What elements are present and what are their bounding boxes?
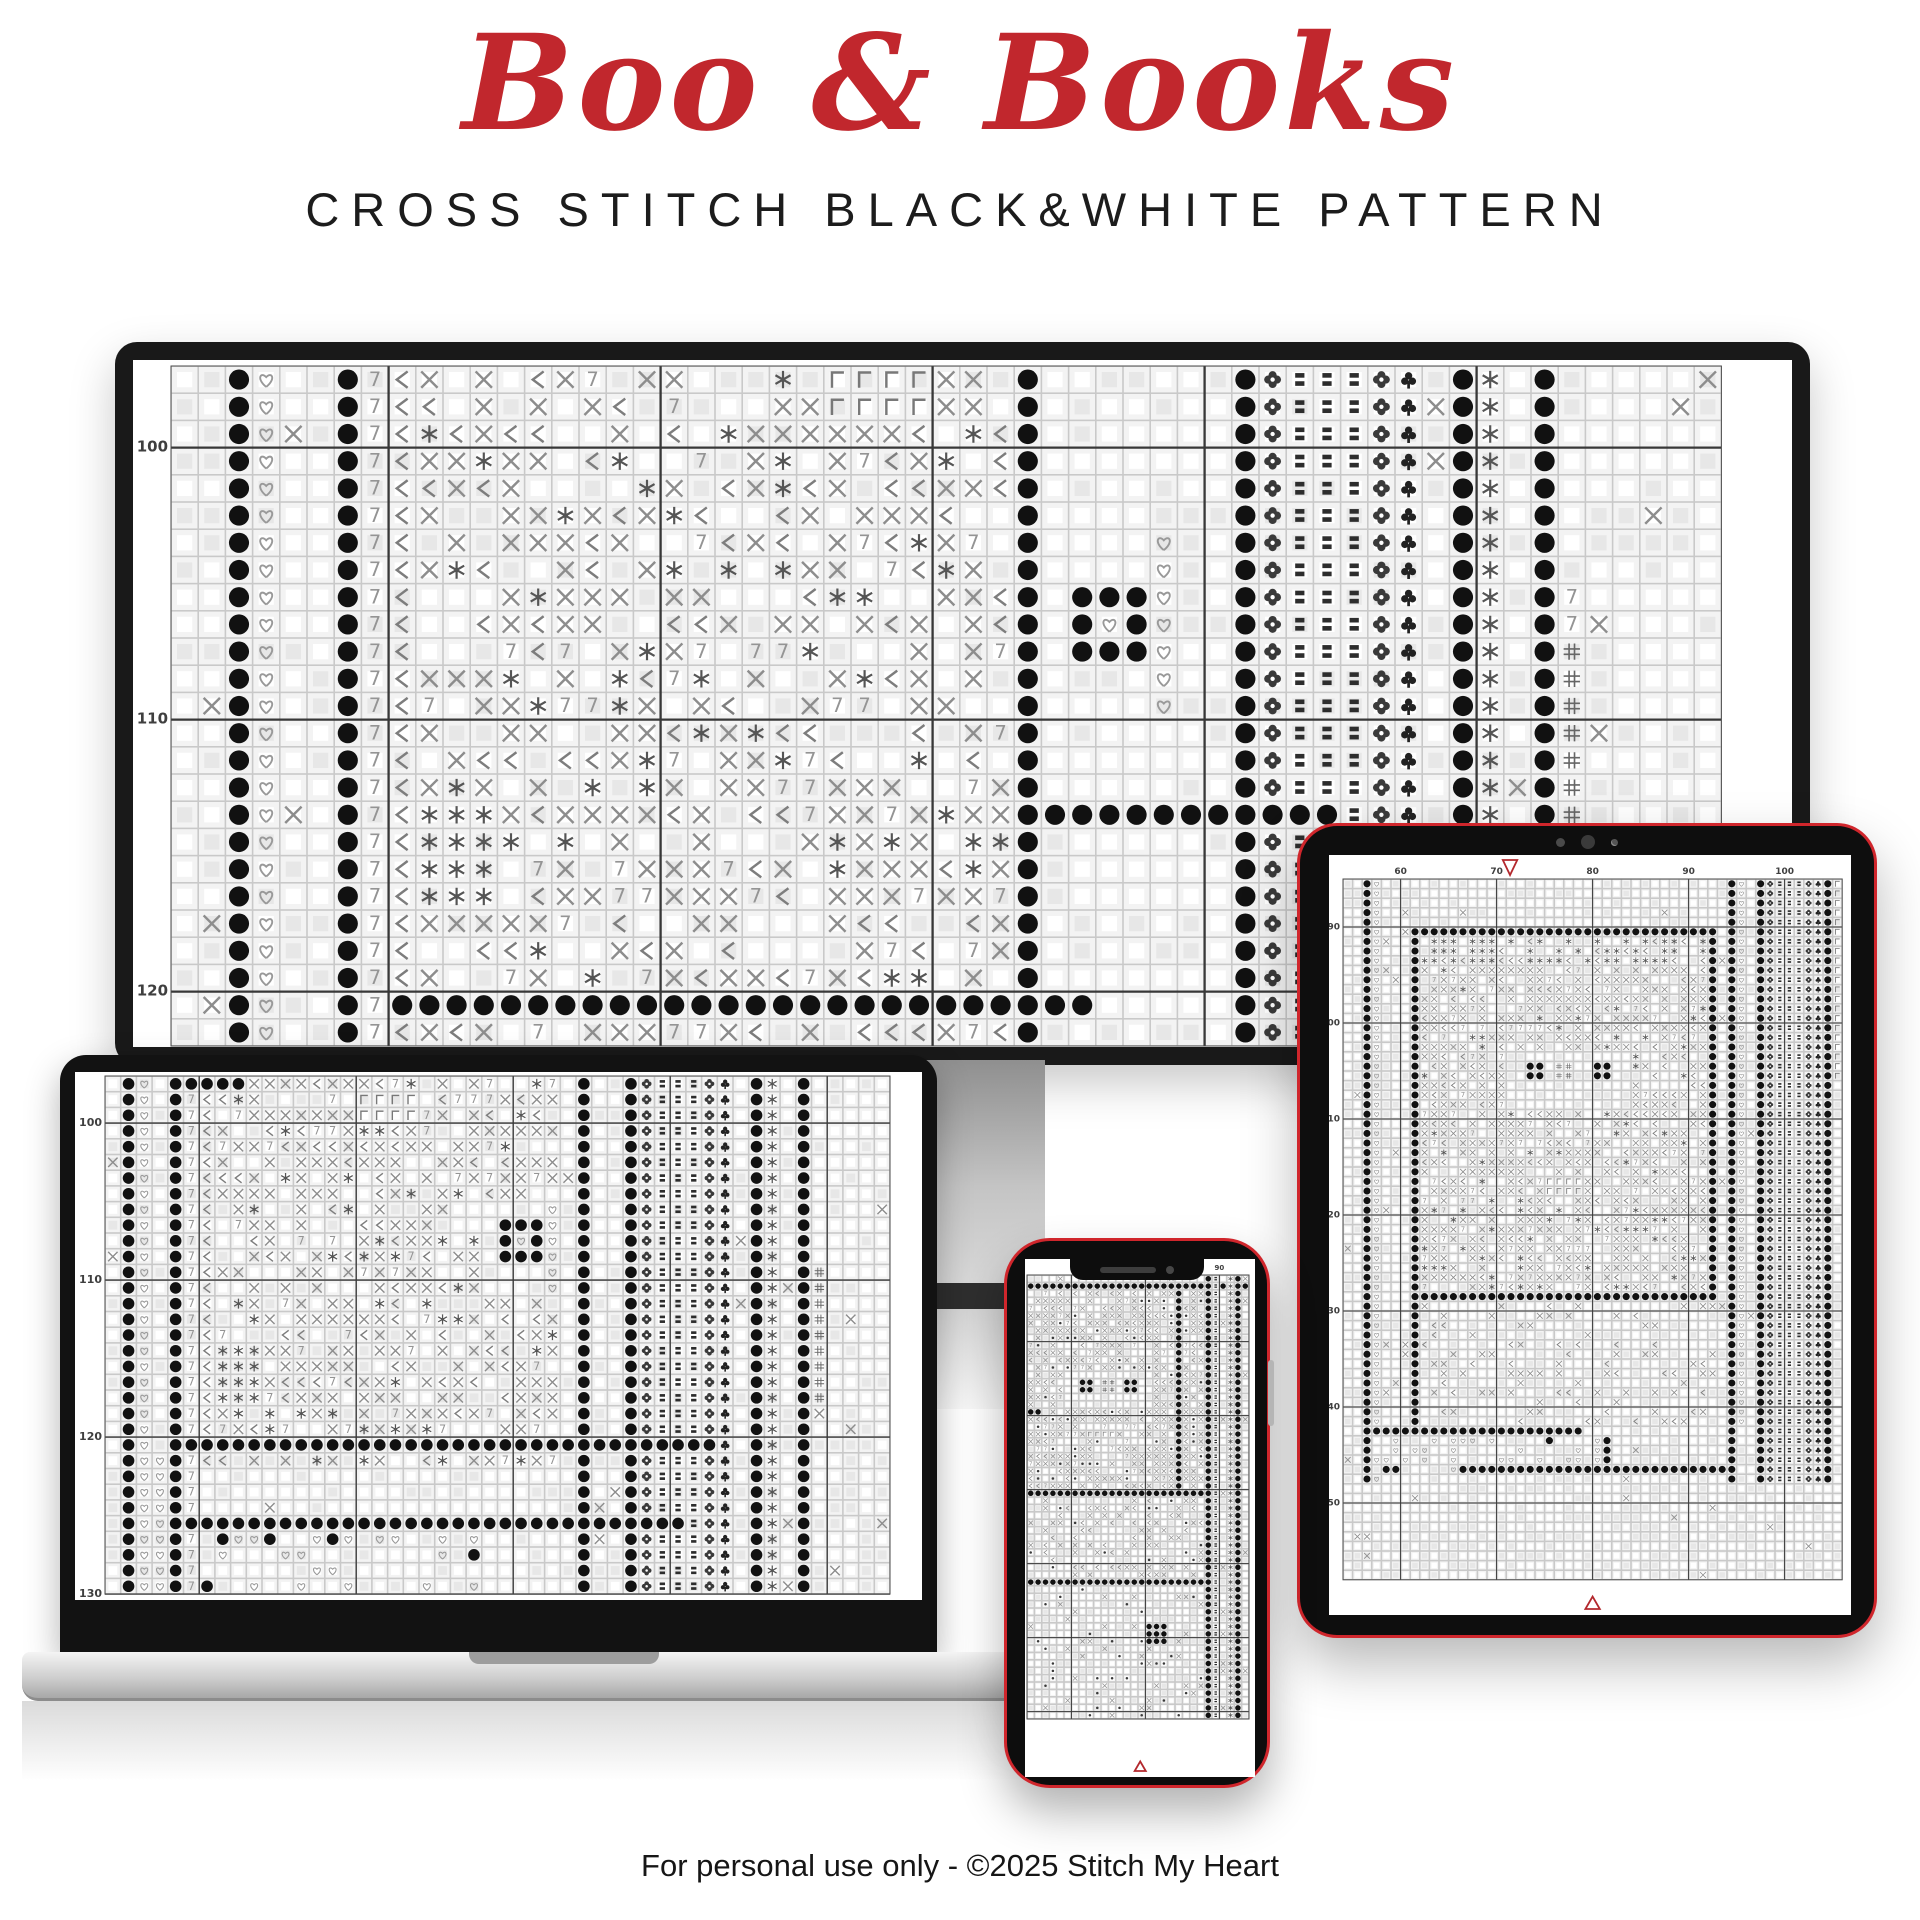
tablet-mockup (1297, 823, 1877, 1638)
footer-text: For personal use only - ©2025 Stitch My … (0, 1848, 1920, 1884)
poster: Boo & Books CROSS STITCH BLACK&WHITE PAT… (0, 0, 1920, 1920)
laptop-reflection (22, 1701, 1105, 1781)
tablet-screen (1329, 855, 1851, 1615)
phone-side-button (1268, 1360, 1274, 1426)
tablet-camera-dot-icon (1556, 838, 1565, 847)
phone-pattern-canvas (1025, 1259, 1255, 1777)
laptop-base-notch (469, 1652, 659, 1664)
laptop-base (22, 1652, 1105, 1701)
poster-subtitle: CROSS STITCH BLACK&WHITE PATTERN (0, 182, 1920, 237)
laptop-screen (75, 1072, 922, 1600)
tablet-bezel (1300, 826, 1874, 1635)
tablet-camera-lens-icon (1581, 835, 1595, 849)
phone-screen (1025, 1259, 1255, 1777)
tablet-sensor-dot-icon (1611, 839, 1618, 846)
poster-title: Boo & Books (0, 8, 1920, 160)
phone-speaker-icon (1100, 1267, 1156, 1273)
phone-notch (1070, 1259, 1204, 1280)
tablet-pattern-canvas (1329, 855, 1851, 1615)
phone-camera-icon (1166, 1266, 1174, 1274)
phone-bezel (1007, 1241, 1267, 1785)
phone-mockup (1004, 1238, 1270, 1788)
laptop-mockup (60, 1055, 937, 1652)
laptop-pattern-canvas (75, 1072, 922, 1600)
tablet-camera-icons (1556, 835, 1618, 849)
